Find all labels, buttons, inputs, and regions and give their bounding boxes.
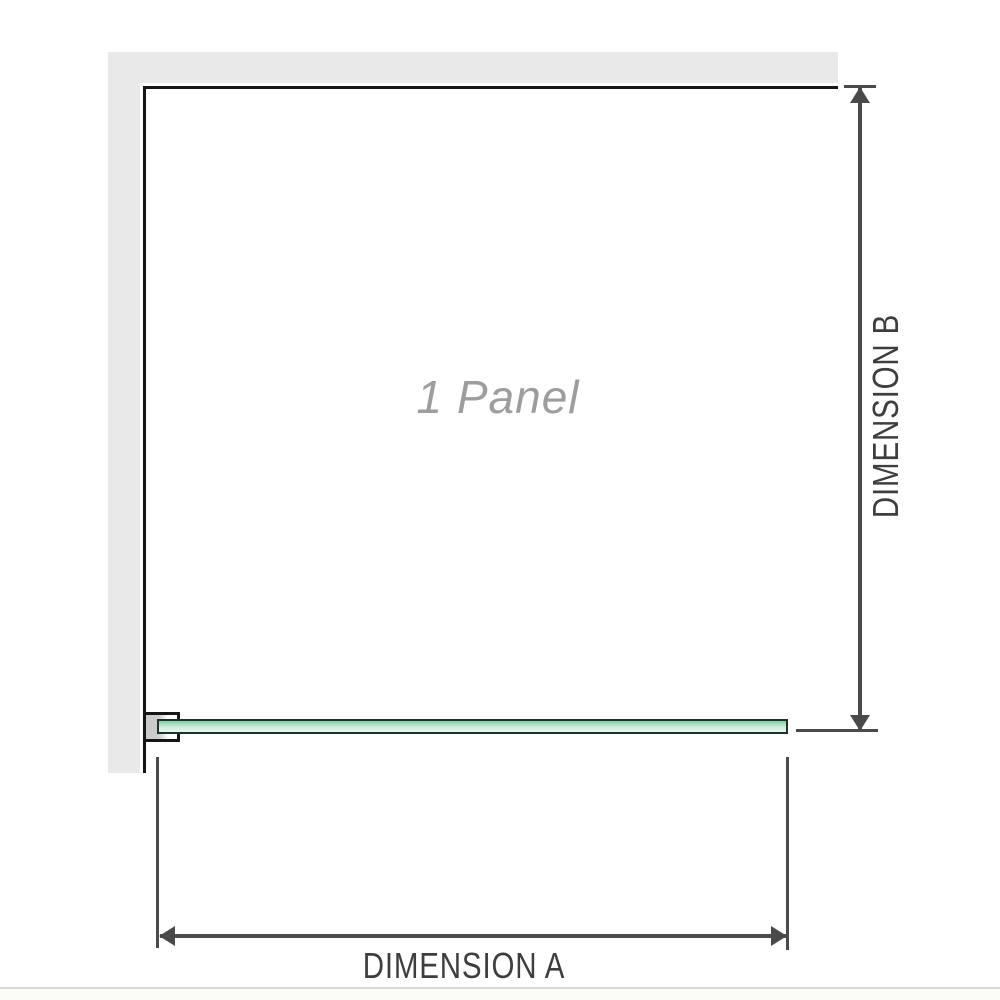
dimension-a-left-extension-line xyxy=(156,757,159,948)
wall-left-inner-edge-line xyxy=(143,86,146,773)
wall-left xyxy=(108,52,140,773)
dimension-a-label: DIMENSION A xyxy=(363,945,566,987)
wall-top-inner-edge-line xyxy=(143,86,838,89)
wall-top xyxy=(108,52,838,83)
dimension-b-arrow-line xyxy=(858,87,862,731)
dimension-b-label: DIMENSION B xyxy=(865,314,907,518)
dimension-a-right-extension-line xyxy=(786,757,789,950)
arrow-down-icon xyxy=(850,715,870,731)
arrow-left-icon xyxy=(159,926,175,946)
glass-panel xyxy=(157,719,788,734)
panel-count-label: 1 Panel xyxy=(416,370,579,424)
dimension-a-arrow-line xyxy=(160,934,787,938)
bottom-background-strip xyxy=(0,989,1000,1000)
arrow-up-icon xyxy=(850,87,870,103)
arrow-right-icon xyxy=(771,926,787,946)
shower-screen-dimension-diagram: 1 Panel DIMENSION B DIMENSION A xyxy=(0,0,1000,1000)
